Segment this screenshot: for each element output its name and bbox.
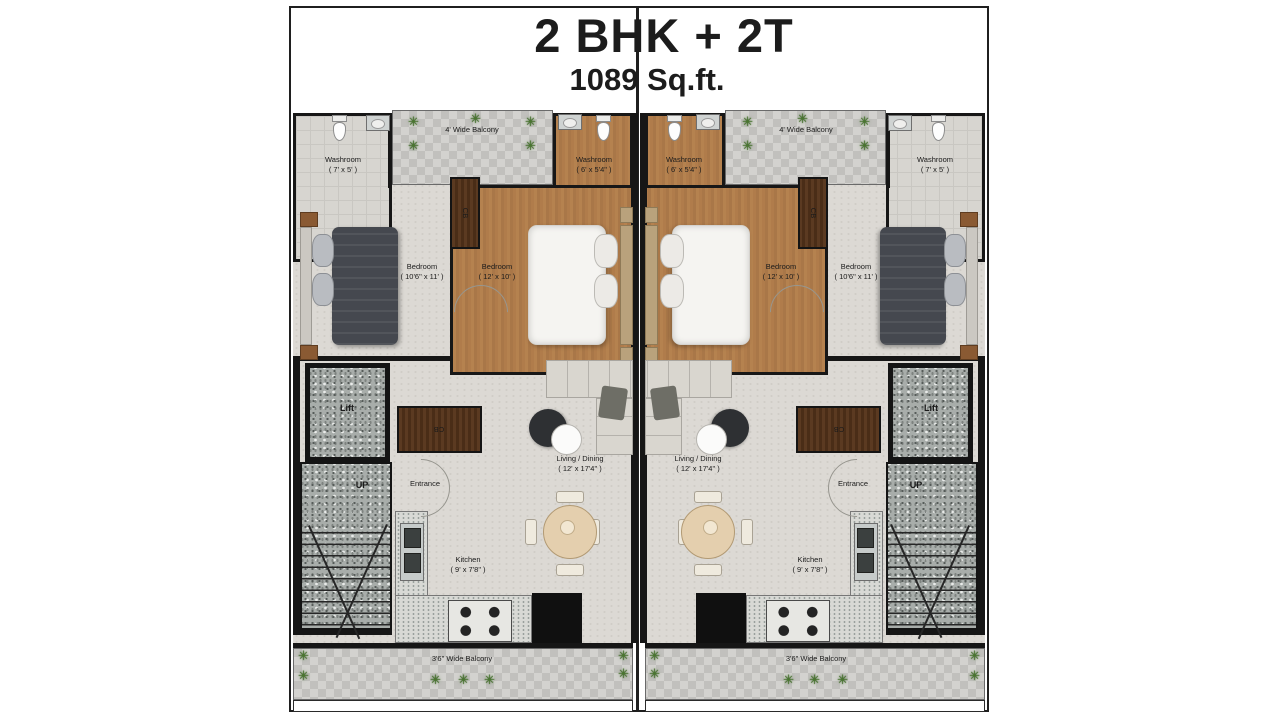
pillow [312,234,334,267]
kitchen-sink [400,523,424,581]
dining-chair [556,491,584,503]
room-name: Kitchen [792,555,827,565]
room-name: Washroom [576,155,612,165]
floor-plan-right-unit: ✳ ✳ ✳ ✳ ✳ ✳ ✳ ✳ ✳ ✳ ✳ ✳ Washroom ( 7' x … [640,107,990,713]
pillow [660,234,684,268]
dining-chair [556,564,584,576]
entrance-label: Entrance [838,479,868,489]
stairs-up-label: UP [910,479,923,491]
room-name: Bedroom [401,262,444,272]
bed-headboard [620,225,633,345]
dining-chair [694,491,722,503]
plant-icon: ✳ [484,673,495,686]
sofa-throw [650,385,680,420]
pillow [594,234,618,268]
kitchen-label: Kitchen ( 9' x 7'8" ) [792,555,827,575]
plant-icon: ✳ [470,112,481,125]
pillow [594,274,618,308]
wall [978,357,985,635]
bedroom-outer-label: Bedroom ( 10'6" x 11' ) [835,262,878,282]
room-dims: ( 6' x 5'4" ) [576,165,612,175]
bedroom-outer-label: Bedroom ( 10'6" x 11' ) [401,262,444,282]
plan-title: 2 BHK + 2T [534,8,793,63]
room-name: Washroom [917,155,953,165]
plant-icon: ✳ [649,649,660,662]
plant-icon: ✳ [649,667,660,680]
console-label: CB [434,424,444,434]
room-dims: ( 6' x 5'4" ) [666,165,702,175]
toilet-tank-icon [667,115,682,122]
toilet-tank-icon [931,115,946,122]
plinth-strip [645,700,985,712]
plant-icon: ✳ [837,673,848,686]
sink-icon [558,114,582,130]
coffee-table-white [551,424,582,455]
plant-icon: ✳ [797,112,808,125]
room-dims: ( 10'6" x 11' ) [835,272,878,282]
room-dims: ( 7' x 5' ) [325,165,361,175]
lift-label: Lift [340,402,354,414]
plant-icon: ✳ [458,673,469,686]
console-label: CB [834,424,844,434]
plant-icon: ✳ [742,115,753,128]
room-dims: ( 9' x 7'8" ) [450,565,485,575]
plant-icon: ✳ [859,139,870,152]
washroom-inner-label: Washroom ( 6' x 5'4" ) [666,155,702,175]
plant-icon: ✳ [408,139,419,152]
bedside-table [960,212,978,227]
dining-table [681,505,735,559]
plant-icon: ✳ [783,673,794,686]
kitchen-label: Kitchen ( 9' x 7'8" ) [450,555,485,575]
pillow [944,273,966,306]
wardrobe-label: CB [808,208,818,218]
entrance-label: Entrance [410,479,440,489]
room-name: Living / Dining [556,454,603,464]
wall [293,643,633,648]
wall [293,630,392,635]
room-dims: ( 12' x 10' ) [763,272,800,282]
kitchen-sink [854,523,878,581]
living-dining-label: Living / Dining ( 12' x 17'4" ) [556,454,603,474]
bedside-table [960,345,978,360]
bedroom-inner-label: Bedroom ( 12' x 10' ) [763,262,800,282]
plant-icon: ✳ [809,673,820,686]
room-name: Washroom [325,155,361,165]
room-name: Living / Dining [674,454,721,464]
wall [645,643,985,648]
pillow [312,273,334,306]
plant-icon: ✳ [525,139,536,152]
floor-plan-left-unit: ✳ ✳ ✳ ✳ ✳ ✳ ✳ ✳ ✳ ✳ ✳ ✳ Washroom ( 7' x … [288,107,638,713]
wall [886,630,985,635]
stove [448,600,512,642]
staircase [886,462,978,630]
pillow [944,234,966,267]
top-balcony-label: 4' Wide Balcony [445,125,499,135]
dining-chair [525,519,537,545]
bottom-balcony-label: 3'6" Wide Balcony [432,654,492,664]
sink-icon [366,115,390,131]
counter-black [532,593,582,643]
top-balcony-label: 4' Wide Balcony [779,125,833,135]
plant-icon: ✳ [969,649,980,662]
room-name: Washroom [666,155,702,165]
toilet-tank-icon [332,115,347,122]
bedside-table [620,207,633,223]
washroom-outer-label: Washroom ( 7' x 5' ) [917,155,953,175]
plant-icon: ✳ [298,669,309,682]
staircase [300,462,392,630]
washroom-inner-label: Washroom ( 6' x 5'4" ) [576,155,612,175]
stove [766,600,830,642]
lift-label: Lift [924,402,938,414]
room-dims: ( 12' x 10' ) [479,272,516,282]
bed-headboard [300,227,312,345]
dining-chair [741,519,753,545]
bottom-balcony-label: 3'6" Wide Balcony [786,654,846,664]
living-dining-label: Living / Dining ( 12' x 17'4" ) [674,454,721,474]
room-dims: ( 12' x 17'4" ) [674,464,721,474]
bedside-table [300,212,318,227]
room-name: Kitchen [450,555,485,565]
bedroom-inner-label: Bedroom ( 12' x 10' ) [479,262,516,282]
room-name: Bedroom [763,262,800,272]
dining-table [543,505,597,559]
plan-area: 1089 Sq.ft. [569,62,724,98]
plant-icon: ✳ [525,115,536,128]
room-dims: ( 12' x 17'4" ) [556,464,603,474]
room-name: Bedroom [835,262,878,272]
room-dims: ( 10'6" x 11' ) [401,272,444,282]
bed-headboard [966,227,978,345]
plant-icon: ✳ [408,115,419,128]
floor-plan-page: 2 BHK + 2T 1089 Sq.ft. [0,0,1280,720]
bed-dark [880,227,946,345]
plant-icon: ✳ [618,649,629,662]
sink-icon [888,115,912,131]
plant-icon: ✳ [742,139,753,152]
counter-black [696,593,746,643]
sink-icon [696,114,720,130]
wardrobe-label: CB [460,208,470,218]
toilet-tank-icon [596,115,611,122]
dining-chair [694,564,722,576]
plinth-strip [293,700,633,712]
wall [293,357,300,635]
washroom-outer-label: Washroom ( 7' x 5' ) [325,155,361,175]
bedside-table [300,345,318,360]
plant-icon: ✳ [618,667,629,680]
room-name: Bedroom [479,262,516,272]
bed-dark [332,227,398,345]
plant-icon: ✳ [298,649,309,662]
plant-icon: ✳ [969,669,980,682]
plant-icon: ✳ [859,115,870,128]
coffee-table-white [696,424,727,455]
bedside-table [645,207,658,223]
bed-headboard [645,225,658,345]
room-dims: ( 9' x 7'8" ) [792,565,827,575]
plant-icon: ✳ [430,673,441,686]
stairs-up-label: UP [356,479,369,491]
room-dims: ( 7' x 5' ) [917,165,953,175]
sofa-throw [598,385,628,420]
pillow [660,274,684,308]
